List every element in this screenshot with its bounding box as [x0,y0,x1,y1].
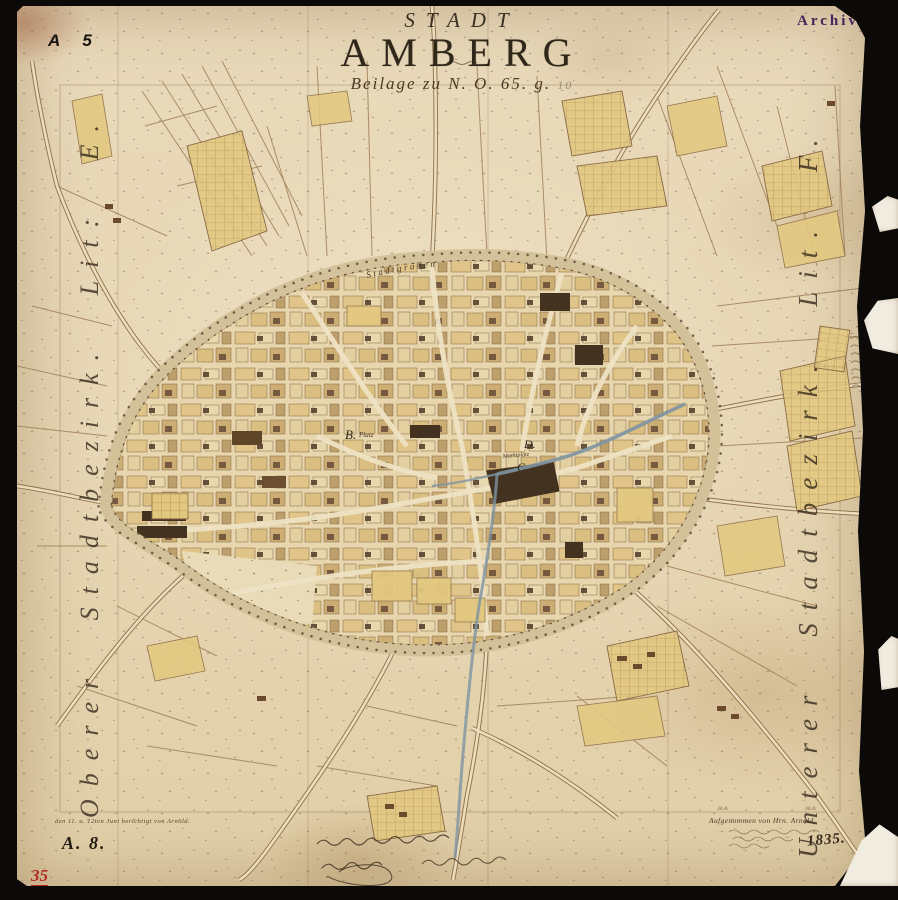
right-margin-district-label: Unterer Stadtbezirk. Lit. F. [793,88,824,858]
district-b-suffix: Platz [358,431,374,439]
title-beilage: Beilage zu N. O. 65. g. 10 [197,74,727,94]
district-b-label: B. [345,427,356,442]
scanned-map-sheet: Stadtgraben B. Platz C. D. Marktplatz 30… [0,0,898,900]
torn-edge-patch [864,298,898,354]
district-d-label: D. [523,437,536,451]
survey-credit: Aufgenommen von Hrn. Arnold [709,816,814,825]
title-block: STADT AMBERG Beilage zu N. O. 65. g. 10 [197,8,727,94]
torn-edge-patch [876,636,898,690]
bottom-sheet-ref: A. 8. [62,833,107,854]
beilage-text: Beilage zu N. O. 65. g. [351,74,551,93]
revision-note: den 11. u. 12ten Juni berichtigt von Arn… [55,818,190,825]
red-inventory-number: 35 [31,867,48,887]
parcel-number: 30.A. [716,806,729,812]
district-c-label: C. [517,460,528,474]
map-drawing: Stadtgraben B. Platz C. D. Marktplatz 30… [17,6,865,886]
beilage-suffix: 10 [557,78,573,92]
left-margin-district-label: Oberer Stadtbezirk. Lit: E. [75,98,105,818]
sheet-number-stamp: A 5 [48,31,101,51]
archiv-stamp: Archiv [797,13,859,30]
torn-edge-patch [872,196,898,232]
map-paper: Stadtgraben B. Platz C. D. Marktplatz 30… [17,6,865,886]
survey-year: 1835. [806,830,846,850]
page-title: AMBERG [197,29,727,76]
